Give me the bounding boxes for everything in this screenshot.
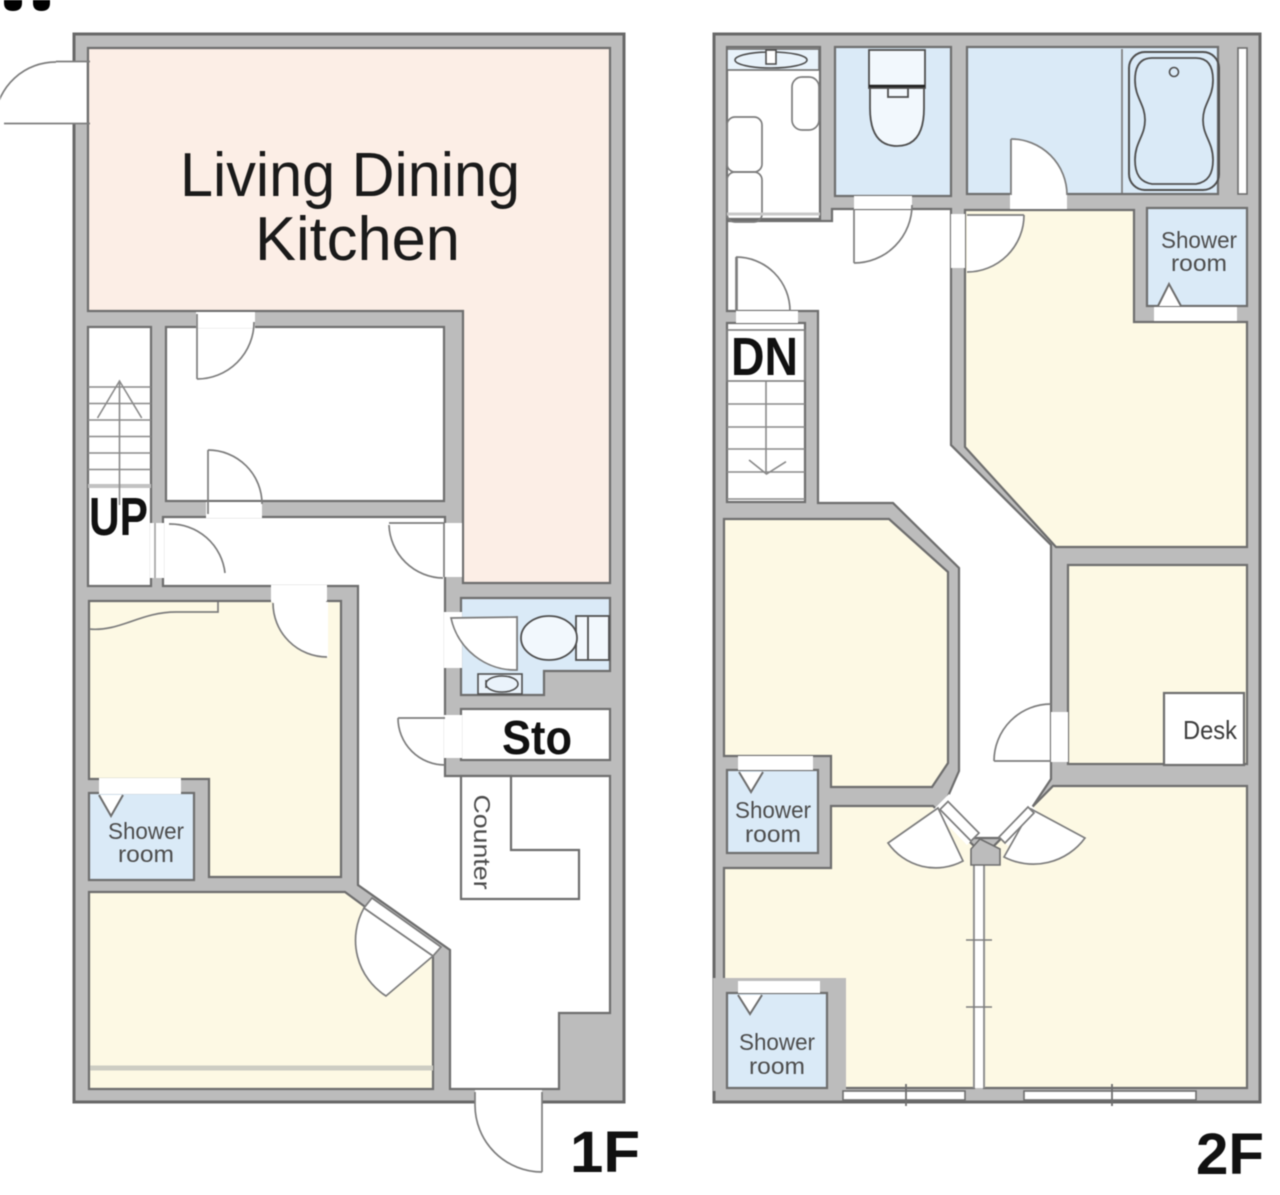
svg-text:Kitchen: Kitchen (255, 205, 460, 274)
svg-text:room: room (745, 821, 801, 847)
svg-text:Living Dining: Living Dining (180, 141, 520, 210)
svg-text:Counter: Counter (469, 795, 495, 890)
svg-text:DN: DN (731, 327, 798, 387)
svg-text:Desk: Desk (1183, 715, 1238, 745)
svg-text:Shower: Shower (739, 1029, 815, 1055)
svg-text:UP: UP (89, 487, 148, 547)
svg-text:room: room (118, 841, 174, 867)
svg-text:room: room (1171, 250, 1227, 276)
svg-text:room: room (749, 1053, 805, 1079)
svg-text:Sto: Sto (502, 712, 572, 765)
svg-text:Shower: Shower (735, 797, 811, 823)
svg-text:2F: 2F (1196, 1122, 1264, 1187)
svg-text:1F: 1F (570, 1120, 640, 1185)
